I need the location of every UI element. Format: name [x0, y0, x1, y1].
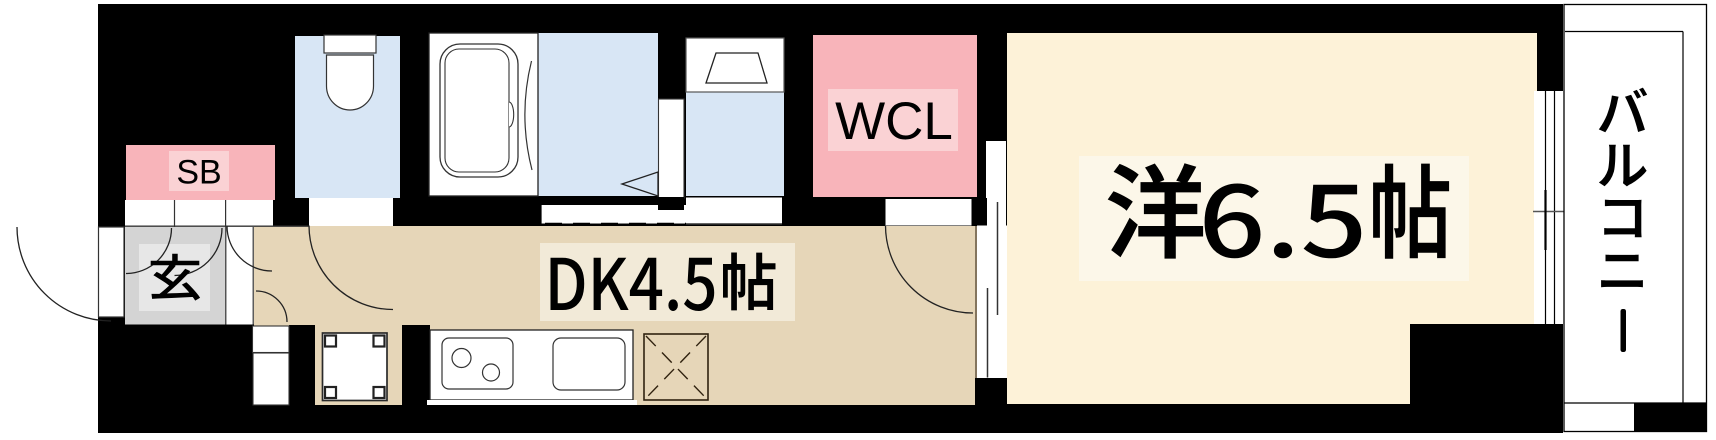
svg-text:WCL: WCL: [835, 92, 953, 151]
svg-text:SB: SB: [176, 154, 221, 192]
